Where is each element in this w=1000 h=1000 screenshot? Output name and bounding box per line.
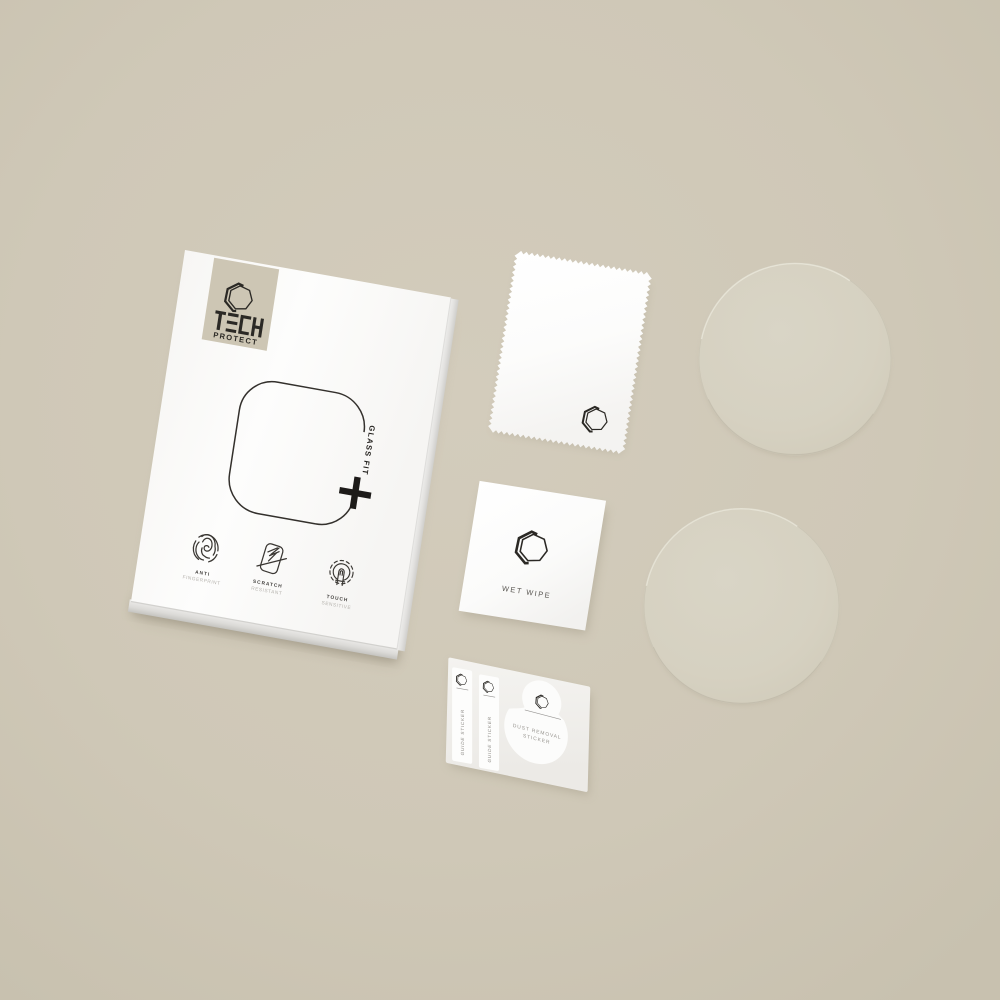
svg-text:GUIDE STICKER: GUIDE STICKER	[460, 709, 465, 756]
svg-text:GUIDE STICKER: GUIDE STICKER	[487, 716, 492, 763]
